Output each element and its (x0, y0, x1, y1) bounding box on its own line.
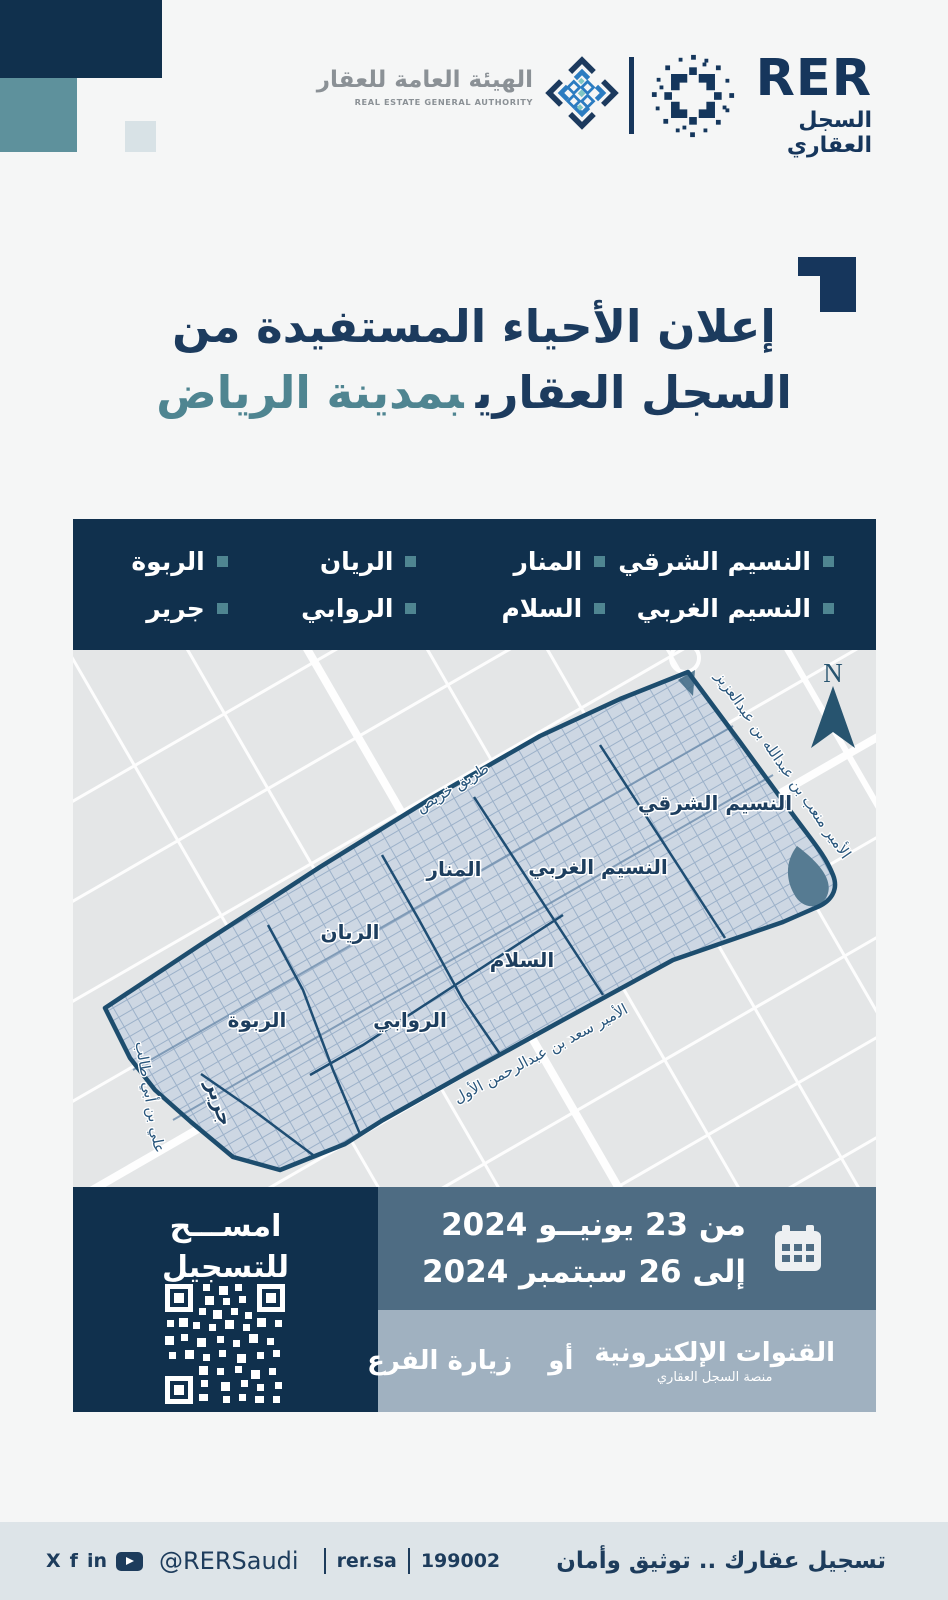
neighborhood-label: جرير (146, 594, 205, 623)
calendar-icon (772, 1223, 824, 1275)
neighborhood-label: النسيم الغربي (637, 594, 811, 623)
period-to: إلى 26 سبتمبر 2024 (422, 1249, 746, 1296)
footer-tagline: تسجيل عقارك .. توثيق وأمان (556, 1548, 886, 1574)
neighborhood-label: المنار (513, 547, 582, 576)
scan-line1: امســـح (73, 1207, 378, 1248)
neighborhood-label: الريان (320, 547, 394, 576)
neighborhood-label: الربوة (131, 547, 204, 576)
logo-divider (629, 57, 634, 134)
bullet-square-icon (217, 556, 228, 567)
bullet-square-icon (823, 603, 834, 614)
neighborhood-item: الربوة (73, 547, 270, 576)
neighborhood-label: الروابي (301, 594, 393, 623)
bullet-square-icon (594, 556, 605, 567)
scan-panel: امســـح للتسجيل (73, 1187, 378, 1412)
or-label: أو (548, 1346, 573, 1376)
neighborhood-item: الريان (270, 547, 459, 576)
district-label-nasim-gharbi: النسيم الغربي (528, 855, 668, 880)
footer-divider (408, 1548, 410, 1574)
neighborhood-item: السلام (458, 594, 647, 623)
rer-acronym: RER (740, 56, 872, 103)
platform-label: منصة السجل العقاري (594, 1370, 835, 1385)
page-title: إعلان الأحياء المستفيدة من السجل العقاري… (50, 294, 898, 425)
registration-qr-code[interactable] (165, 1284, 285, 1404)
rega-logo-text: الهيئة العامة للعقار REAL ESTATE GENERAL… (243, 68, 533, 107)
footer-bar: X f in @RERSaudi rer.sa 199002 تسجيل عقا… (0, 1522, 948, 1600)
district-label-rawabi: الروابي (373, 1008, 447, 1033)
scan-caption: امســـح للتسجيل (73, 1207, 378, 1288)
branch-visit-label: زيارة الفرع (367, 1346, 512, 1376)
footer-contacts: X f in @RERSaudi rer.sa 199002 (46, 1547, 500, 1575)
x-twitter-icon[interactable]: X (46, 1550, 61, 1572)
decorative-light-square (125, 121, 156, 152)
rer-logo-text: RER السجل العقاري (740, 56, 872, 158)
rer-dots-logo-icon (650, 53, 736, 139)
neighborhood-label: السلام (501, 594, 582, 623)
title-line2-accent: بمدينة الرياض (156, 366, 463, 419)
neighborhood-item: النسيم الغربي (647, 594, 876, 623)
website-link[interactable]: rer.sa (337, 1550, 397, 1572)
neighborhood-item: المنار (458, 547, 647, 576)
facebook-icon[interactable]: f (70, 1550, 78, 1572)
districts-map: النسيم الشرقي النسيم الغربي المنار الريا… (73, 650, 876, 1187)
bullet-square-icon (405, 603, 416, 614)
footer-divider (324, 1548, 326, 1574)
bullet-square-icon (594, 603, 605, 614)
district-label-manar: المنار (426, 857, 482, 881)
decorative-navy-block (0, 0, 162, 78)
registration-period: من 23 يونيــو 2024 إلى 26 سبتمبر 2024 (422, 1202, 746, 1295)
channels-panel: القنوات الإلكترونية منصة السجل العقاري أ… (378, 1310, 876, 1412)
neighborhoods-bar: النسيم الشرقي المنار الريان الربوة النسي… (73, 519, 876, 650)
title-line1: إعلان الأحياء المستفيدة من (50, 294, 898, 360)
bullet-square-icon (823, 556, 834, 567)
title-line2: السجل العقاريبمدينة الرياض (50, 360, 898, 426)
district-label-rabwah: الربوة (228, 1008, 287, 1032)
youtube-icon[interactable] (116, 1552, 143, 1571)
registration-period-panel: من 23 يونيــو 2024 إلى 26 سبتمبر 2024 (378, 1187, 876, 1310)
period-from: من 23 يونيــو 2024 (422, 1202, 746, 1249)
decorative-teal-square (0, 78, 77, 152)
electronic-channels-label: القنوات الإلكترونية (594, 1338, 835, 1368)
neighborhood-item: الروابي (270, 594, 459, 623)
district-label-rayyan: الريان (321, 920, 380, 944)
rega-name-arabic: الهيئة العامة للعقار (243, 68, 533, 93)
district-label-salam: السلام (490, 948, 555, 972)
neighborhood-label: النسيم الشرقي (618, 547, 811, 576)
rer-name-arabic: السجل العقاري (740, 108, 872, 158)
bullet-square-icon (217, 603, 228, 614)
title-line2-dark: السجل العقاري (476, 366, 792, 419)
rega-name-english: REAL ESTATE GENERAL AUTHORITY (243, 97, 533, 107)
electronic-channels: القنوات الإلكترونية منصة السجل العقاري (594, 1338, 835, 1385)
north-label: N (823, 658, 843, 688)
phone-number[interactable]: 199002 (421, 1550, 500, 1572)
neighborhood-item: النسيم الشرقي (647, 547, 876, 576)
district-label-nasim-sharqi: النسيم الشرقي (638, 791, 792, 816)
bullet-square-icon (405, 556, 416, 567)
linkedin-icon[interactable]: in (87, 1550, 107, 1572)
social-handle[interactable]: @RERSaudi (159, 1547, 299, 1575)
rega-diamond-logo-icon (543, 55, 621, 131)
scan-line2: للتسجيل (73, 1248, 378, 1289)
poster: الهيئة العامة للعقار REAL ESTATE GENERAL… (0, 0, 948, 1600)
neighborhood-item: جرير (73, 594, 270, 623)
